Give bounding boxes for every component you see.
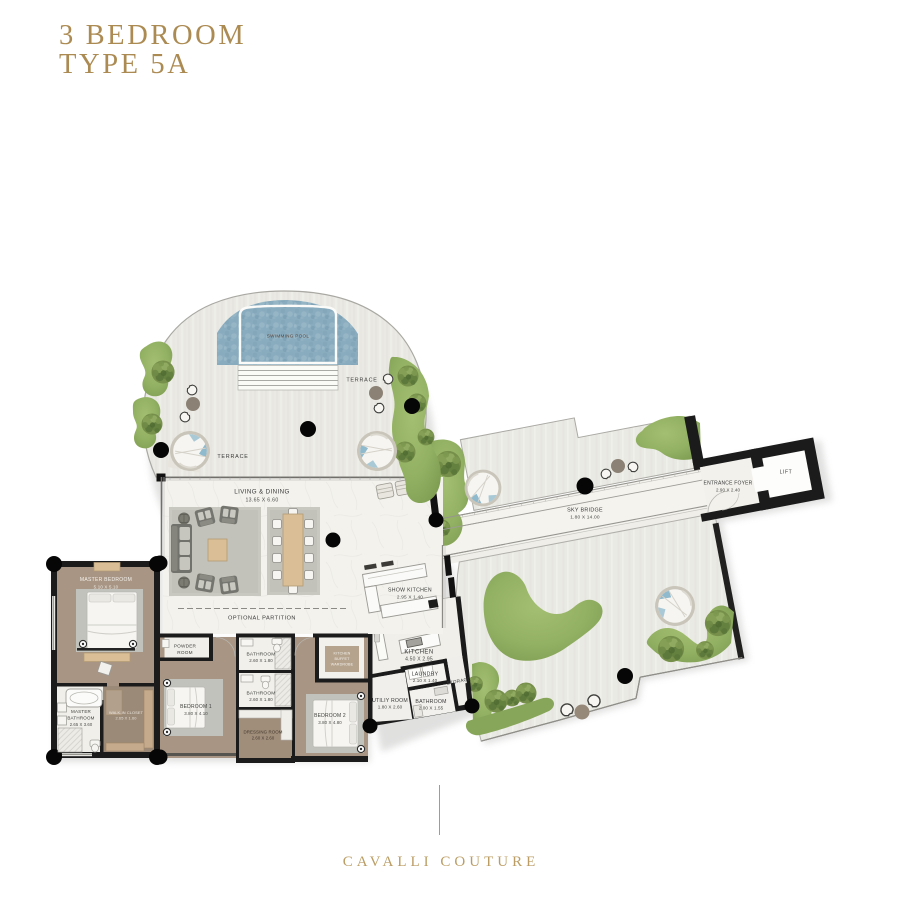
- svg-text:DRESSING ROOM: DRESSING ROOM: [243, 730, 282, 735]
- svg-text:5.10 X 5.10: 5.10 X 5.10: [94, 585, 119, 590]
- svg-text:1.80 X 2.60: 1.80 X 2.60: [378, 705, 403, 710]
- svg-text:BATHROOM: BATHROOM: [67, 716, 94, 721]
- svg-text:BUFFET: BUFFET: [335, 657, 351, 661]
- svg-text:2.95 X 1.40: 2.95 X 1.40: [397, 595, 423, 600]
- svg-text:3.80 X 4.80: 3.80 X 4.80: [318, 720, 342, 725]
- svg-text:BATHROOM: BATHROOM: [415, 699, 446, 705]
- svg-text:LIFT: LIFT: [780, 470, 793, 476]
- svg-text:2.90 X 2.40: 2.90 X 2.40: [716, 488, 741, 493]
- svg-text:SWIMMING POOL: SWIMMING POOL: [267, 334, 310, 339]
- svg-text:OPTIONAL PARTITION: OPTIONAL PARTITION: [228, 616, 296, 622]
- svg-text:LIVING & DINING: LIVING & DINING: [234, 489, 290, 496]
- svg-text:2.60 X 2.60: 2.60 X 2.60: [252, 736, 275, 741]
- svg-text:2.65 X 1.60: 2.65 X 1.60: [115, 716, 137, 721]
- svg-text:4.50 X 2.95: 4.50 X 2.95: [405, 657, 433, 663]
- svg-text:TERRACE: TERRACE: [346, 378, 377, 384]
- svg-text:KITCHEN: KITCHEN: [334, 652, 351, 656]
- svg-text:2.60 X 1.80: 2.60 X 1.80: [249, 697, 273, 702]
- svg-text:BATHROOM: BATHROOM: [247, 652, 276, 658]
- svg-text:13.65 X 6.60: 13.65 X 6.60: [245, 498, 278, 504]
- svg-text:2.65 X 3.60: 2.65 X 3.60: [70, 722, 93, 727]
- svg-text:2.10 X 1.40: 2.10 X 1.40: [413, 678, 438, 683]
- svg-text:ROOM: ROOM: [177, 650, 192, 655]
- svg-text:2.00 X 1.55: 2.00 X 1.55: [419, 706, 444, 711]
- svg-text:POWDER: POWDER: [174, 644, 197, 649]
- svg-text:SHOW KITCHEN: SHOW KITCHEN: [388, 588, 432, 594]
- svg-text:WALK-IN CLOSET: WALK-IN CLOSET: [109, 710, 144, 715]
- svg-text:BEDROOM 2: BEDROOM 2: [314, 713, 346, 719]
- svg-text:KITCHEN: KITCHEN: [404, 650, 433, 656]
- svg-text:BATHROOM: BATHROOM: [247, 691, 276, 697]
- svg-text:2.60 X 1.80: 2.60 X 1.80: [249, 658, 273, 663]
- svg-text:1.80 X 14.00: 1.80 X 14.00: [570, 515, 600, 521]
- svg-text:UTILIY ROOM: UTILIY ROOM: [372, 698, 408, 704]
- svg-text:WARDROBE: WARDROBE: [331, 663, 354, 667]
- svg-text:SKY BRIDGE: SKY BRIDGE: [567, 508, 603, 514]
- svg-text:3.80 X 4.10: 3.80 X 4.10: [184, 711, 208, 716]
- svg-text:BEDROOM 1: BEDROOM 1: [180, 704, 212, 710]
- svg-text:LAUNDRY: LAUNDRY: [412, 672, 439, 678]
- svg-text:ENTRANCE FOYER: ENTRANCE FOYER: [704, 481, 753, 487]
- svg-text:TERRACE: TERRACE: [217, 454, 248, 460]
- svg-text:MASTER: MASTER: [71, 709, 92, 714]
- svg-text:MASTER BEDROOM: MASTER BEDROOM: [80, 577, 132, 583]
